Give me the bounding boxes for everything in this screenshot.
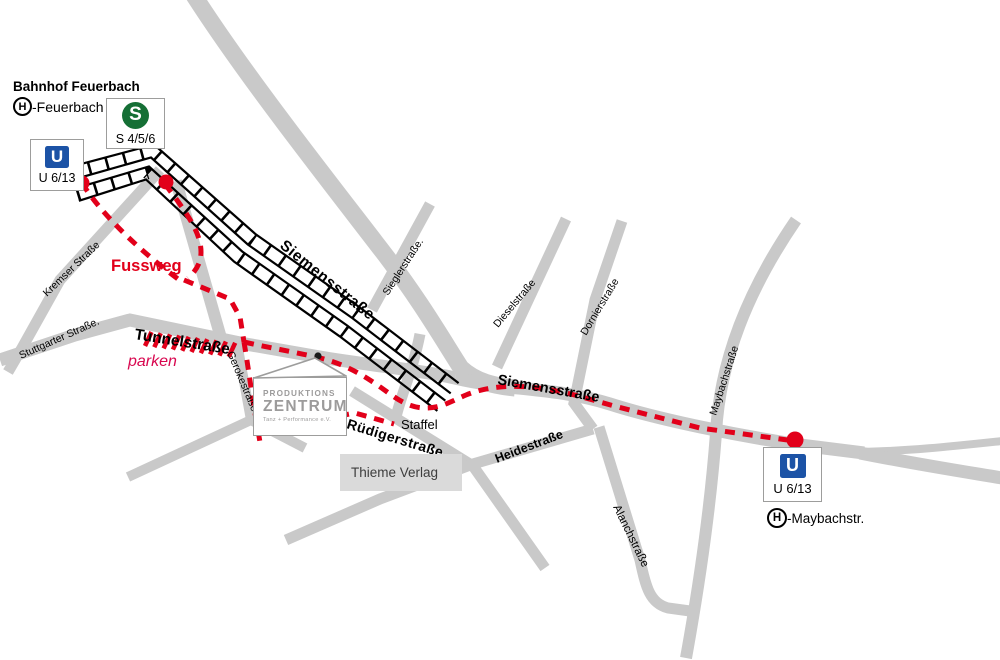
- station-dot-s-feuerbach: [159, 175, 174, 190]
- street-label-staffel: Staffel: [401, 417, 438, 432]
- s-bahn-logo-icon: S: [122, 102, 149, 129]
- u-bahn-station-box-maybachstr: U U 6/13: [763, 447, 822, 502]
- u-bahn-logo-icon: U: [780, 454, 806, 478]
- bahnhof-feuerbach-title: Bahnhof Feuerbach: [13, 79, 140, 94]
- haltestelle-icon: H: [767, 508, 787, 528]
- venue-name-line3: Tanz + Performance e.V.: [263, 417, 348, 423]
- haltestelle-maybachstr-label: H-Maybachstr.: [767, 508, 864, 528]
- thieme-verlag-building: Thieme Verlag: [340, 454, 462, 491]
- s-bahn-lines-label: S 4/5/6: [116, 132, 156, 146]
- u-bahn-logo-icon: U: [45, 146, 69, 168]
- u-bahn-lines-label: U 6/13: [773, 481, 811, 496]
- haltestelle-maybachstr-text: -Maybachstr.: [787, 511, 864, 526]
- s-bahn-station-box: S S 4/5/6: [106, 98, 165, 149]
- u-bahn-lines-label: U 6/13: [39, 171, 76, 185]
- u-bahn-station-box-feuerbach: U U 6/13: [30, 139, 84, 191]
- haltestelle-feuerbach-label: -Feuerbach: [32, 99, 104, 115]
- venue-callout: PRODUKTIONS ZENTRUM Tanz + Performance e…: [253, 356, 347, 436]
- annotation-parken: parken: [127, 353, 177, 370]
- venue-logo-box: PRODUKTIONS ZENTRUM Tanz + Performance e…: [253, 377, 347, 436]
- annotation-fussweg: Fussweg: [111, 257, 182, 275]
- venue-name-line2: ZENTRUM: [263, 399, 348, 416]
- street-label-kremser-strasse: Kremser Straße: [41, 239, 103, 299]
- street-label-siemensstrasse-lower: Siemensstraße: [496, 372, 600, 406]
- street-label-heidestrasse: Heidestraße: [493, 427, 565, 466]
- haltestelle-icon: H: [13, 97, 32, 116]
- road-dieselstrasse: [497, 219, 566, 367]
- road-geroke-branch-sw: [128, 420, 251, 477]
- road-fork-upper: [860, 441, 1000, 452]
- station-dot-u-maybachstr: [787, 432, 804, 449]
- venue-roof-icon: [253, 356, 347, 379]
- site-map: Siemensstraße Kremser Straße Stuttgarter…: [0, 0, 1000, 660]
- road-fork-lower: [860, 453, 1000, 478]
- road-alanchstrasse: [599, 427, 690, 611]
